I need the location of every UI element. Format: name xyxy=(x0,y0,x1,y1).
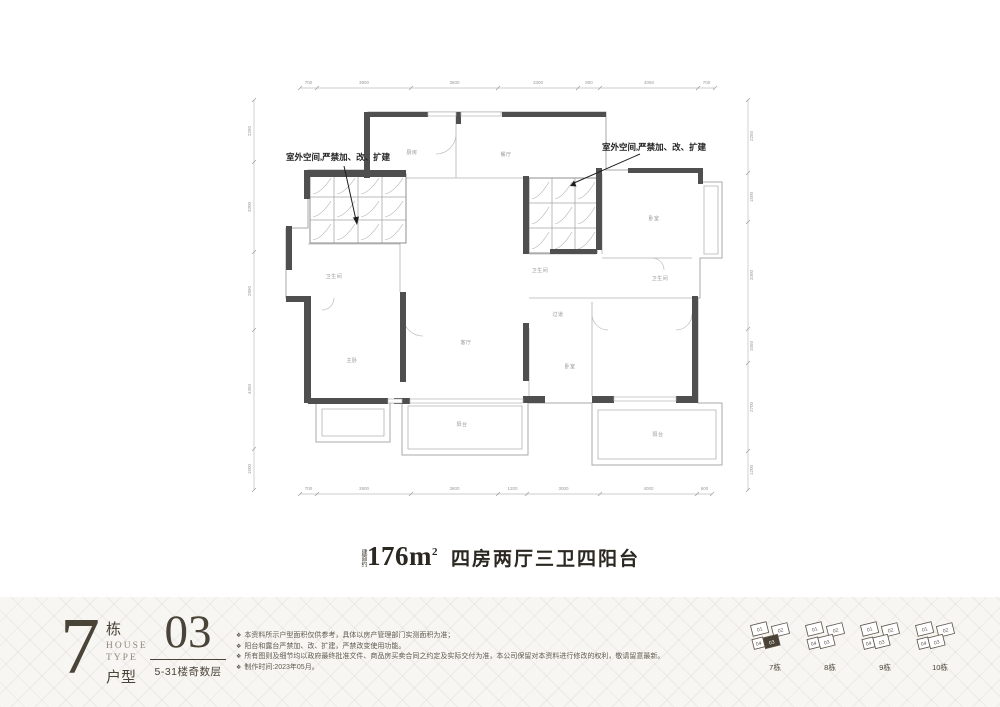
house-label: HOUSE xyxy=(106,641,148,651)
floorplan-drawing: 700 3900 3600 3300 900 4050 700 700 3900… xyxy=(240,70,770,510)
disclaimer-text: 阳台和露台严禁加、改、扩建，严禁改变使用功能。 xyxy=(244,642,405,653)
annotation-left-text: 室外空间,严禁加、改、扩建 xyxy=(286,152,391,162)
plan-windows xyxy=(388,112,676,403)
room-label: 卧室 xyxy=(564,363,575,370)
dimension-value: 4350 xyxy=(247,383,252,394)
dimension-value: 3600 xyxy=(449,80,460,85)
dimension-value: 2250 xyxy=(247,125,252,136)
bullet-icon: ❖ xyxy=(236,652,241,663)
dimension-value: 3300 xyxy=(533,80,544,85)
plan-outline xyxy=(286,112,722,465)
keyplan-building-9: 01 02 04 03 9栋 xyxy=(858,615,912,673)
block-badge: 7 栋 HOUSE TYPE 户型 xyxy=(60,605,148,689)
outdoor-terrace-right xyxy=(529,178,597,253)
dimension-value: 1500 xyxy=(749,191,754,202)
dimension-value: 900 xyxy=(585,80,593,85)
bullet-icon: ❖ xyxy=(236,631,241,642)
dimension-value: 3300 xyxy=(749,269,754,280)
bullet-icon: ❖ xyxy=(236,663,241,674)
keyplan-diagram: 01 02 04 03 xyxy=(803,615,857,661)
dimension-value: 1200 xyxy=(749,464,754,475)
dimension-value: 700 xyxy=(305,486,313,491)
disclaimer-text: 本资料所示户型面积仅供参考，具体以房产管理部门实测面积为准； xyxy=(244,631,454,642)
annotation-right-text: 室外空间,严禁加、改、扩建 xyxy=(602,142,707,152)
disclaimer-item: ❖ 制作时间:2023年05月。 xyxy=(236,663,664,674)
keyplan-building-7: 01 02 04 03 7栋 xyxy=(748,615,802,673)
keyplan-label: 9栋 xyxy=(858,662,912,673)
plan-title: 建面约176m2四房两厅三卫四阳台 xyxy=(0,541,1000,572)
disclaimer-list: ❖ 本资料所示户型面积仅供参考，具体以房产管理部门实测面积为准； ❖ 阳台和露台… xyxy=(236,631,664,673)
room-label: 卫生间 xyxy=(652,275,669,282)
dimension-value: 4000 xyxy=(643,486,654,491)
dimension-value: 3000 xyxy=(558,486,569,491)
room-label: 餐厅 xyxy=(500,151,511,158)
room-label: 主卧 xyxy=(346,357,357,364)
keyplan-building-8: 01 02 04 03 8栋 xyxy=(803,615,857,673)
dimension-value: 1500 xyxy=(247,463,252,474)
room-label: 阳台 xyxy=(456,421,467,428)
room-label: 厨房 xyxy=(406,149,417,156)
keyplan-diagram: 01 02 04 03 xyxy=(858,615,912,661)
building-keyplans: 01 02 04 03 7栋 01 02 xyxy=(748,615,968,673)
footer-band: 7 栋 HOUSE TYPE 户型 03 5-31楼奇数层 ❖ 本资料所示户型面… xyxy=(0,597,1000,707)
unit-badge: 03 5-31楼奇数层 xyxy=(146,607,230,679)
dimension-value: 2850 xyxy=(247,285,252,296)
dimension-value: 2250 xyxy=(749,130,754,141)
room-label: 卫生间 xyxy=(326,273,343,280)
huxing-label: 户型 xyxy=(106,666,148,687)
keyplan-diagram: 01 02 04 03 xyxy=(748,615,802,661)
room-label: 客厅 xyxy=(460,339,471,346)
dimension-value: 3900 xyxy=(359,80,370,85)
keyplan-diagram: 01 02 04 03 xyxy=(913,615,967,661)
block-unit-label: 栋 xyxy=(106,618,148,639)
room-label: 卧室 xyxy=(648,215,659,222)
room-label: 过道 xyxy=(552,311,563,318)
bullet-icon: ❖ xyxy=(236,642,241,653)
disclaimer-item: ❖ 阳台和露台严禁加、改、扩建，严禁改变使用功能。 xyxy=(236,642,664,653)
dimension-value: 3900 xyxy=(359,486,370,491)
dimension-value: 4050 xyxy=(644,80,655,85)
block-number: 7 xyxy=(60,605,100,689)
keyplan-label: 8栋 xyxy=(803,662,857,673)
unit-floors: 5-31楼奇数层 xyxy=(146,664,230,679)
dimension-value: 600 xyxy=(701,486,709,491)
area-number: 176m xyxy=(367,541,432,571)
dimension-value: 700 xyxy=(305,80,313,85)
disclaimer-text: 所有图则及细节均以政府最终批准文件、商品房买卖合同之约定及实际交付为准，本公司保… xyxy=(244,652,664,663)
floorplan-page: 700 3900 3600 3300 900 4050 700 700 3900… xyxy=(0,0,1000,707)
disclaimer-item: ❖ 所有图则及细节均以政府最终批准文件、商品房买卖合同之约定及实际交付为准，本公… xyxy=(236,652,664,663)
area-prefix: 建面约 xyxy=(360,549,366,567)
area-value: 176m2 xyxy=(367,541,438,571)
disclaimer-text: 制作时间:2023年05月。 xyxy=(244,663,318,674)
room-label: 卫生间 xyxy=(532,267,549,274)
dimension-value: 3600 xyxy=(449,486,460,491)
type-label: TYPE xyxy=(106,653,148,663)
disclaimer-item: ❖ 本资料所示户型面积仅供参考，具体以房产管理部门实测面积为准； xyxy=(236,631,664,642)
dimension-value: 1200 xyxy=(507,486,518,491)
unit-number: 03 xyxy=(146,607,230,657)
block-badge-labels: 栋 HOUSE TYPE 户型 xyxy=(106,605,148,689)
unit-divider xyxy=(150,659,226,660)
dimension-value: 1050 xyxy=(749,340,754,351)
keyplan-label: 7栋 xyxy=(748,662,802,673)
dimension-value: 3300 xyxy=(247,201,252,212)
dimension-value: 700 xyxy=(703,80,711,85)
keyplan-label: 10栋 xyxy=(913,662,967,673)
dimension-value: 2700 xyxy=(749,401,754,412)
keyplan-building-10: 01 02 04 03 10栋 xyxy=(913,615,967,673)
room-label: 阳台 xyxy=(652,431,663,438)
layout-description: 四房两厅三卫四阳台 xyxy=(451,549,640,570)
outdoor-terrace-left xyxy=(310,174,406,243)
area-superscript: 2 xyxy=(432,546,438,558)
